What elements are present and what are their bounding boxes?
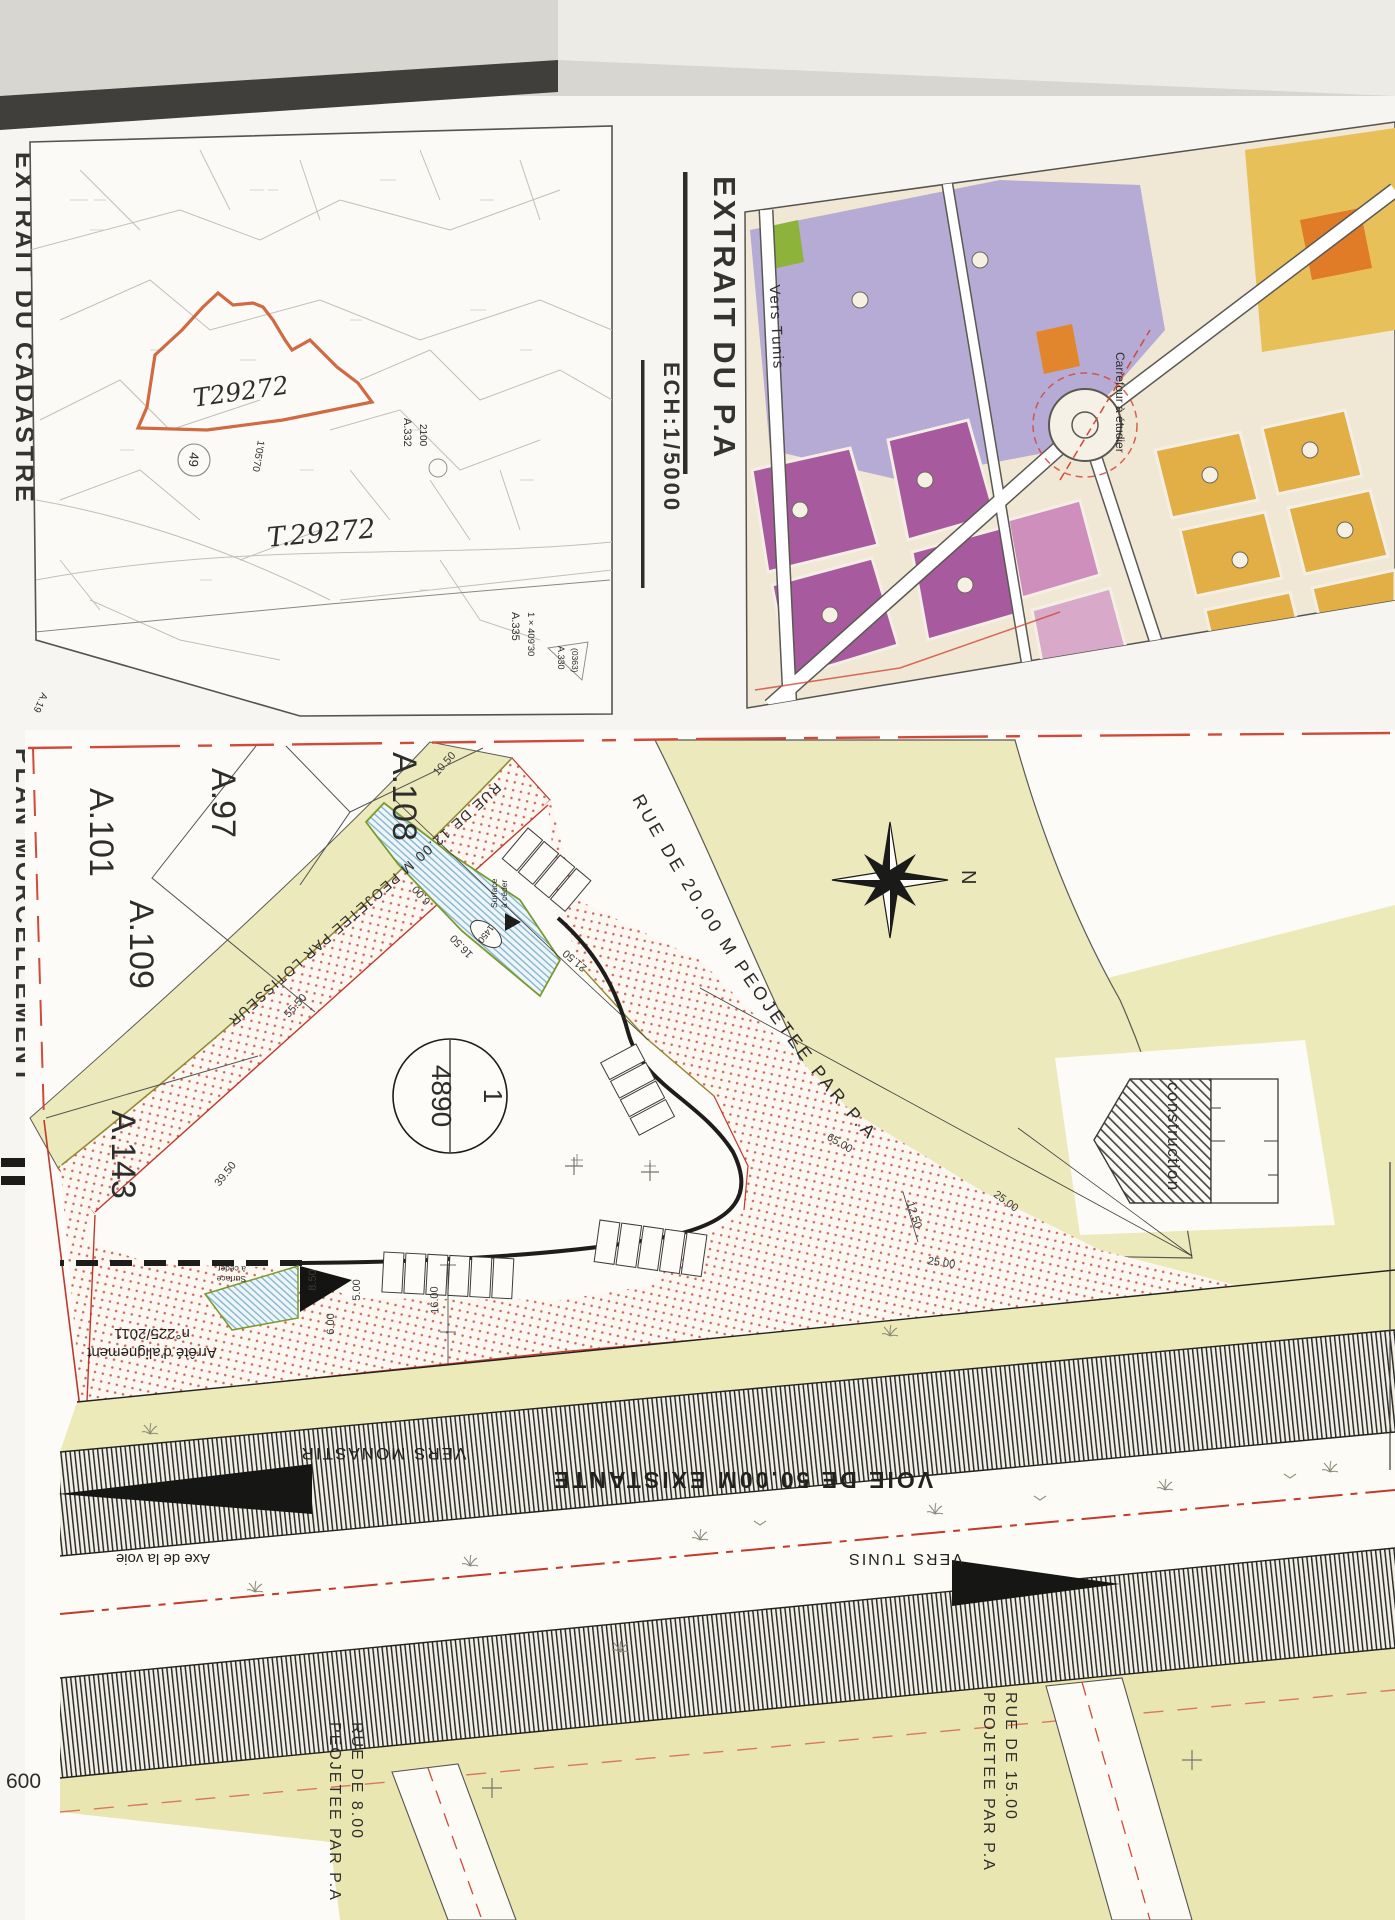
cadastre-a19: A.19 — [30, 691, 49, 715]
compass-north-label: N — [957, 870, 979, 884]
dim-6-00-b: 6.00 — [325, 1313, 337, 1334]
dim-5-00: 5.00 — [351, 1279, 363, 1300]
plan-scan-canvas: EXTRAIT DU CADASTRE PLAN MORCELLEMENT — [0, 0, 1395, 1920]
lot-area: 4890 — [426, 1065, 457, 1127]
svg-text:à céder: à céder — [217, 1264, 246, 1274]
cadastre-a332: A.332 — [401, 418, 413, 447]
svg-text:Surface: Surface — [216, 1274, 246, 1284]
svg-text:PEOJETEE PAR P.A: PEOJETEE PAR P.A — [326, 1722, 343, 1902]
cadastre-map: T29272 T.29272 49 A.332 2100 A.335 1 × 4… — [30, 126, 612, 716]
parcel-label-a97: A.97 — [204, 768, 242, 838]
svg-text:RUE DE 15.00: RUE DE 15.00 — [1002, 1692, 1019, 1821]
surface-ceder-note-bottom: Surface à céder — [216, 1264, 246, 1284]
pa-carrefour-note: Carrefour à étudier — [1113, 352, 1127, 453]
cadastre-a332-num: 2100 — [417, 424, 428, 447]
pa-titles: EXTRAIT DU P.A ECH:1/5000 — [641, 172, 742, 588]
title-extrait-pa: EXTRAIT DU P.A — [707, 176, 742, 460]
title-scale: ECH:1/5000 — [659, 362, 684, 513]
parcel-label-a143: A.143 — [104, 1110, 142, 1199]
cadastre-a335: A.335 — [509, 612, 521, 641]
label-axe-voie: Axe de la voie — [116, 1550, 210, 1567]
scanned-plan-page: EXTRAIT DU CADASTRE PLAN MORCELLEMENT — [0, 0, 1395, 1920]
construction-label: construction — [1164, 1082, 1183, 1192]
page-number: 600 — [6, 1770, 41, 1793]
cadastre-a330-num: (0363) — [570, 648, 580, 673]
svg-text:PEOJETEE PAR P.A: PEOJETEE PAR P.A — [980, 1692, 997, 1872]
svg-text:Arrêté d'alignement: Arrêté d'alignement — [86, 1344, 216, 1361]
pa-map: Vers Tunis Carrefour à étudier — [745, 122, 1395, 708]
label-voie-50: VOIE DE 50.00M EXISTANTE — [551, 1467, 933, 1493]
parcel-label-a109: A.109 — [122, 900, 160, 989]
label-vers-tunis: VERS TUNIS — [847, 1550, 963, 1567]
label-vers-monastir: VERS MONASTIR — [300, 1444, 467, 1463]
parcel-label-a108: A.108 — [385, 752, 423, 841]
svg-text:Surface: Surface — [489, 878, 499, 908]
cadastre-a335-angle: 1 × 409'30 — [525, 612, 536, 656]
svg-text:n°225/2011: n°225/2011 — [114, 1325, 190, 1342]
lot-number-circle: 4890 1 — [393, 1039, 508, 1153]
parcel-label-a101: A.101 — [82, 788, 120, 877]
scan-top-edge — [0, 0, 1395, 130]
lot-number: 1 — [478, 1089, 508, 1103]
svg-text:RUE DE 8.00: RUE DE 8.00 — [348, 1722, 365, 1840]
cadastre-circled-49: 49 — [186, 452, 202, 468]
morcellement-plan: construction Surface à céder Surface à c… — [6, 730, 1395, 1920]
dim-8-50: 8.50 — [307, 1269, 319, 1290]
cadastre-a330: A.330 — [556, 646, 566, 670]
dim-16-00: 16.00 — [429, 1286, 442, 1314]
